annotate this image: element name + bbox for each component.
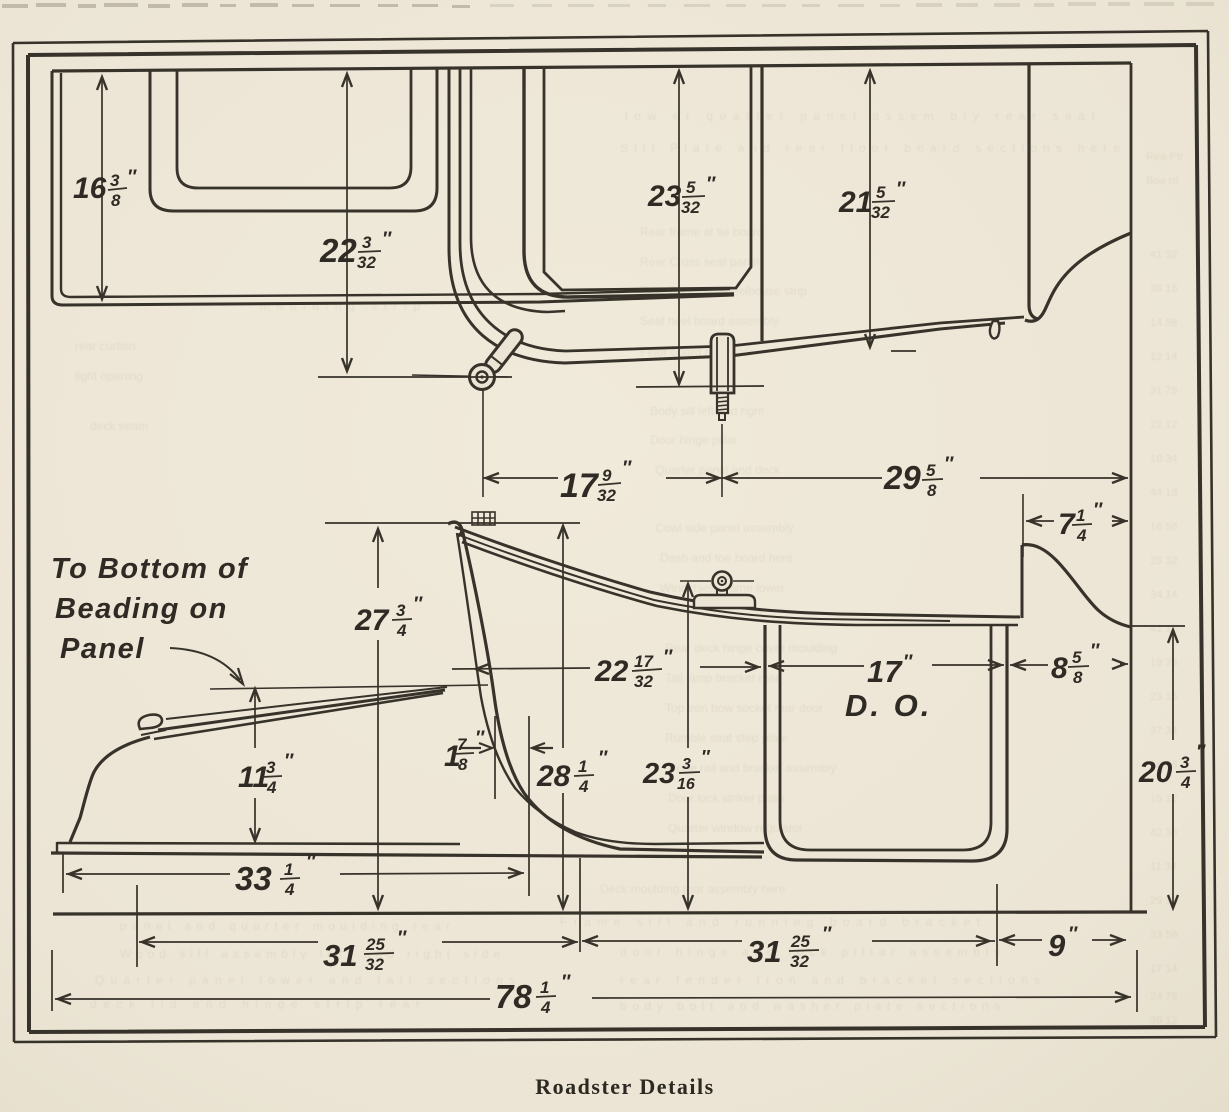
svg-text:4: 4 [540, 998, 551, 1017]
svg-text:deck seam: deck seam [90, 419, 148, 433]
svg-text:24 78: 24 78 [1150, 991, 1178, 1003]
svg-text:1: 1 [540, 978, 549, 997]
svg-text:12 14: 12 14 [1150, 351, 1178, 363]
svg-text:9: 9 [1048, 928, 1066, 963]
svg-text:4: 4 [284, 880, 295, 899]
svg-text:″: ″ [701, 747, 711, 767]
svg-text:31: 31 [747, 934, 781, 969]
svg-text:″: ″ [1090, 641, 1100, 662]
svg-text:16: 16 [677, 776, 695, 793]
svg-text:3: 3 [1180, 753, 1190, 772]
svg-text:5: 5 [876, 183, 886, 202]
svg-text:″: ″ [127, 167, 137, 188]
svg-text:32: 32 [357, 253, 376, 272]
svg-text:25: 25 [365, 935, 385, 954]
svg-text:18 34: 18 34 [1150, 453, 1178, 465]
svg-text:Rear deck hinge cover moul: Rear deck hinge cover moulding [665, 641, 837, 655]
svg-text:3: 3 [682, 756, 691, 773]
svg-text:32: 32 [681, 198, 700, 217]
svg-text:8: 8 [458, 755, 468, 774]
svg-text:17: 17 [867, 654, 903, 689]
svg-text:″: ″ [1196, 742, 1206, 763]
svg-text:22: 22 [594, 655, 629, 688]
svg-text:5: 5 [686, 178, 696, 197]
svg-text:″: ″ [663, 647, 673, 668]
svg-text:32: 32 [790, 952, 809, 971]
svg-text:Tail lamp bracket rear: Tail lamp bracket rear [665, 671, 780, 685]
svg-text:23: 23 [642, 758, 675, 790]
svg-text:″: ″ [598, 748, 608, 769]
svg-text:″: ″ [896, 179, 906, 200]
svg-text:28: 28 [536, 760, 571, 793]
svg-text:28 32: 28 32 [1150, 555, 1178, 567]
svg-text:33: 33 [235, 860, 272, 897]
svg-text:27: 27 [354, 604, 390, 637]
svg-text:8: 8 [927, 481, 937, 500]
svg-text:″: ″ [622, 458, 632, 479]
svg-text:8: 8 [1073, 668, 1083, 687]
svg-text:20: 20 [1138, 756, 1173, 789]
svg-text:16: 16 [73, 172, 107, 205]
svg-text:1: 1 [284, 860, 293, 879]
svg-text:″: ″ [1093, 500, 1103, 521]
svg-text:5: 5 [1072, 648, 1082, 667]
svg-text:3: 3 [110, 171, 120, 190]
svg-text:38 16: 38 16 [1150, 283, 1178, 295]
svg-text:3: 3 [362, 233, 372, 252]
svg-text:″: ″ [475, 728, 485, 749]
svg-text:23: 23 [647, 180, 682, 213]
svg-text:34 14: 34 14 [1150, 589, 1178, 601]
svg-text:22 12: 22 12 [1150, 419, 1178, 431]
svg-text:Rea Ptr: Rea Ptr [1146, 151, 1184, 163]
svg-text:4: 4 [1076, 526, 1087, 545]
svg-text:17 14: 17 14 [1150, 963, 1178, 975]
svg-text:44 18: 44 18 [1150, 487, 1178, 499]
svg-text:8: 8 [1051, 652, 1068, 685]
svg-text:16 58: 16 58 [1150, 521, 1178, 533]
svg-text:41 32: 41 32 [1150, 249, 1178, 261]
svg-text:21: 21 [838, 186, 872, 219]
svg-text:Roadster Details: Roadster Details [535, 1074, 714, 1099]
svg-text:8: 8 [111, 191, 121, 210]
svg-text:5: 5 [926, 461, 936, 480]
svg-text:″: ″ [822, 924, 832, 945]
svg-text:″: ″ [284, 751, 294, 772]
svg-text:Door lock striker plate: Door lock striker plate [668, 791, 784, 805]
svg-text:9: 9 [602, 466, 612, 485]
svg-text:Boa rd: Boa rd [1146, 175, 1178, 187]
svg-text:″: ″ [944, 454, 954, 475]
svg-text:Beading on: Beading on [55, 593, 228, 625]
svg-text:4: 4 [1180, 773, 1191, 792]
svg-text:″: ″ [561, 972, 571, 993]
svg-text:″: ″ [413, 594, 423, 615]
svg-text:4: 4 [396, 621, 407, 640]
svg-text:1: 1 [1076, 506, 1085, 525]
svg-text:″: ″ [397, 928, 407, 949]
svg-text:″: ″ [706, 174, 716, 195]
svg-text:Seat heel board assembly: Seat heel board assembly [640, 314, 779, 328]
svg-text:14 58: 14 58 [1150, 317, 1178, 329]
svg-text:Cowl side panel assembly: Cowl side panel assembly [655, 521, 794, 535]
svg-text:″: ″ [903, 652, 913, 673]
svg-text:4: 4 [578, 777, 589, 796]
svg-text:3: 3 [266, 758, 276, 777]
svg-text:To Bottom of: To Bottom of [51, 553, 250, 585]
svg-text:17: 17 [634, 652, 654, 671]
svg-text:″: ″ [306, 852, 316, 873]
svg-text:Rear Cross seat panel: Rear Cross seat panel [640, 255, 759, 269]
svg-text:22: 22 [319, 232, 357, 269]
svg-text:Door hinge pillar: Door hinge pillar [650, 433, 737, 447]
svg-text:rear curtain: rear curtain [75, 339, 136, 353]
svg-text:Panel: Panel [60, 633, 145, 665]
svg-text:″: ″ [382, 229, 392, 250]
svg-text:1: 1 [578, 757, 587, 776]
svg-text:32: 32 [365, 955, 384, 974]
svg-text:32: 32 [634, 672, 653, 691]
svg-text:Deck moulding rear assembly: Deck moulding rear assembly here [600, 882, 786, 896]
svg-text:Rumble seat step plate: Rumble seat step plate [665, 731, 788, 745]
svg-text:light opening: light opening [75, 369, 143, 383]
svg-text:33 58: 33 58 [1150, 929, 1178, 941]
svg-text:″: ″ [1068, 924, 1078, 945]
svg-text:32: 32 [871, 203, 890, 222]
svg-text:D. O.: D. O. [845, 688, 932, 723]
svg-text:7: 7 [457, 735, 468, 754]
svg-text:25: 25 [790, 932, 810, 951]
svg-text:4: 4 [266, 778, 277, 797]
svg-text:Quarter panel and deck: Quarter panel and deck [655, 463, 781, 477]
svg-text:29: 29 [883, 459, 921, 496]
svg-text:78: 78 [495, 978, 532, 1015]
svg-text:17: 17 [560, 467, 600, 505]
svg-text:31 78: 31 78 [1150, 385, 1178, 397]
svg-text:32: 32 [597, 486, 616, 505]
svg-text:Body sill left and right: Body sill left and right [650, 404, 765, 418]
svg-text:3: 3 [396, 601, 406, 620]
svg-text:Rear frame at tie board: Rear frame at tie board [640, 225, 763, 239]
svg-text:Dash and toe board here: Dash and toe board here [660, 551, 793, 565]
svg-text:31: 31 [323, 938, 357, 973]
